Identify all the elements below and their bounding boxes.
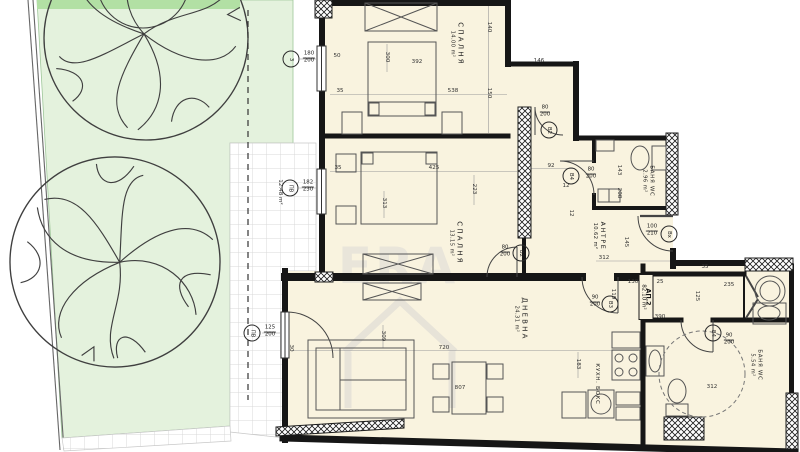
window-bedroom2 xyxy=(317,169,326,214)
balcony-door xyxy=(281,312,289,358)
window-bedroom1 xyxy=(317,46,326,91)
floor-plan-drawing: ERA xyxy=(0,0,800,452)
watermark-text: ERA xyxy=(338,237,458,295)
apartment-floor xyxy=(283,0,793,451)
garden-top-strip xyxy=(37,0,240,9)
floor-plan-page: ERA xyxy=(0,0,800,452)
